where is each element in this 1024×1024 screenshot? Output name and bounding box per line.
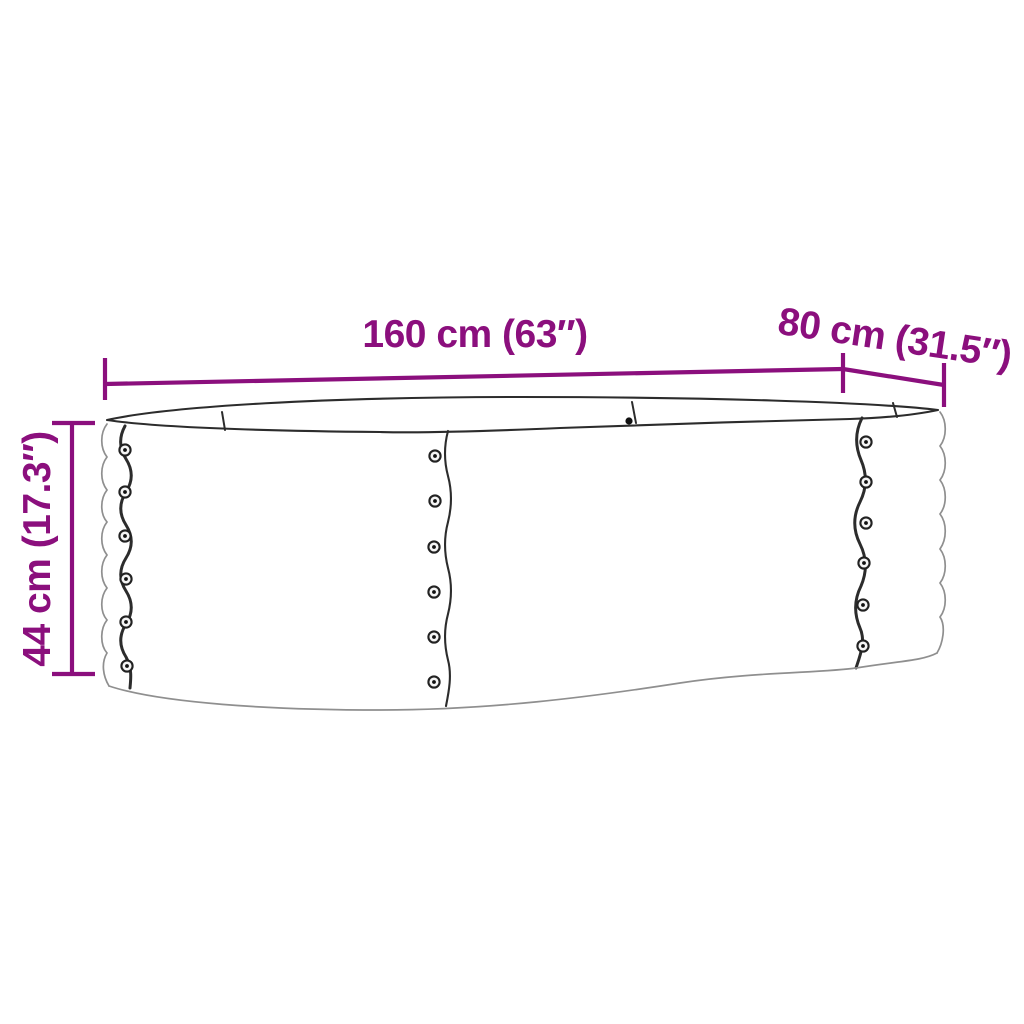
left-corrugated-edge [102, 424, 109, 686]
front-left-seam [445, 431, 451, 706]
rim-seam-tick-left [222, 412, 225, 430]
rim-seam-tick-center [632, 402, 636, 423]
planter-line-drawing [102, 397, 946, 710]
dimension-label-height: 44 cm (17.3″) [16, 431, 59, 666]
right-corrugated-edge [937, 412, 945, 653]
rivets-front-left-seam [428, 450, 440, 687]
dimension-label-width: 80 cm (31.5″) [775, 300, 1014, 377]
length-line [105, 369, 843, 384]
dimension-label-length: 160 cm (63″) [362, 313, 587, 356]
dimension-line-length [105, 353, 843, 400]
left-seam [121, 426, 132, 688]
diagram-canvas: 160 cm (63″) 80 cm (31.5″) 44 cm (17.3″) [0, 0, 1024, 1024]
dimension-line-width [843, 363, 944, 407]
front-right-seam [855, 418, 866, 668]
rim-outline [107, 397, 938, 432]
bottom-edge [109, 653, 937, 710]
rim-seam-rivet [625, 417, 632, 424]
planter-dimension-diagram: 160 cm (63″) 80 cm (31.5″) 44 cm (17.3″) [0, 0, 1024, 1024]
width-line [843, 369, 944, 385]
